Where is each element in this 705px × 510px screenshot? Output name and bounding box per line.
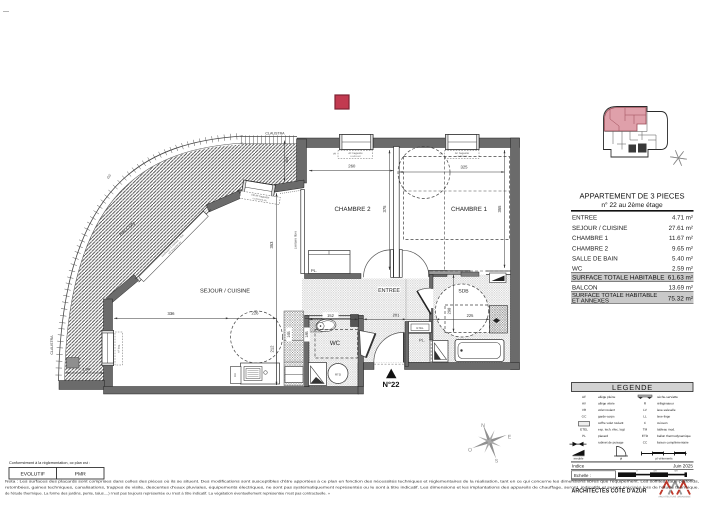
svg-text:ARCHITECTURE URBANISME: ARCHITECTURE URBANISME (658, 496, 691, 499)
svg-text:SURFACE TOTALE HABITABLE: SURFACE TOTALE HABITABLE (572, 275, 665, 282)
svg-text:2.59 m²: 2.59 m² (672, 265, 693, 272)
svg-text:4.71 m²: 4.71 m² (672, 215, 693, 222)
svg-text:LEGENDE: LEGENDE (612, 383, 653, 392)
svg-text:volet roulant: volet roulant (598, 408, 615, 412)
svg-text:CHAMBRE 2: CHAMBRE 2 (572, 245, 609, 252)
svg-text:61.63 m²: 61.63 m² (668, 275, 693, 282)
svg-text:coffre volet roulant: coffre volet roulant (598, 421, 624, 425)
svg-text:27.61 m²: 27.61 m² (669, 225, 693, 232)
svg-text:11.67 m²: 11.67 m² (669, 235, 693, 242)
svg-text:13.69 m²: 13.69 m² (669, 284, 693, 291)
svg-text:201: 201 (393, 313, 400, 318)
svg-text:lave-vaisselle: lave-vaisselle (657, 408, 676, 412)
svg-text:de l'étude thermique. La forme: de l'étude thermique. La forme des jardi… (5, 492, 330, 496)
svg-text:375: 375 (382, 205, 387, 213)
svg-text:PL: PL (582, 434, 586, 438)
svg-text:tableau mod.: tableau mod. (657, 427, 675, 431)
svg-text:SALLE DE BAIN: SALLE DE BAIN (572, 256, 618, 263)
svg-text:ETEL: ETEL (417, 326, 424, 330)
svg-text:PL.: PL. (419, 339, 425, 343)
svg-text:E: E (508, 435, 512, 441)
svg-text:N°22: N°22 (383, 380, 400, 389)
svg-text:SEJOUR / CUISINE: SEJOUR / CUISINE (572, 225, 627, 232)
svg-text:Indice: Indice (572, 463, 585, 468)
svg-text:LL: LL (643, 415, 647, 419)
svg-text:garde-corps: garde-corps (598, 415, 615, 419)
svg-text:ETD: ETD (642, 434, 649, 438)
svg-text:SDB: SDB (458, 289, 469, 295)
svg-text:298: 298 (447, 307, 452, 314)
svg-text:Juin 2025: Juin 2025 (673, 463, 693, 468)
svg-text:S: S (495, 459, 499, 465)
svg-text:ETEL: ETEL (580, 427, 588, 431)
svg-text:9.65 m²: 9.65 m² (672, 245, 693, 252)
svg-text:AF bag.: AF bag. (118, 344, 121, 353)
svg-text:152: 152 (327, 313, 334, 318)
svg-text:robinet de puisage: robinet de puisage (598, 440, 624, 444)
svg-text:75.32 m²: 75.32 m² (668, 296, 693, 303)
svg-text:allège pleine: allège pleine (598, 395, 616, 399)
svg-text:185: 185 (305, 331, 309, 337)
svg-text:PL.: PL. (311, 268, 317, 273)
svg-text:cuisson: cuisson (657, 421, 668, 425)
svg-text:165: 165 (287, 331, 291, 337)
svg-text:404: 404 (285, 157, 289, 163)
svg-text:336: 336 (168, 311, 176, 316)
svg-text:ENTREE: ENTREE (378, 288, 400, 294)
svg-text:pl vêtements: pl vêtements (655, 456, 673, 460)
svg-text:FRI: FRI (234, 373, 237, 377)
svg-text:allège vitrée: allège vitrée (598, 402, 615, 406)
svg-text:esp. tech. élec. logt: esp. tech. élec. logt (598, 427, 625, 431)
svg-text:325: 325 (461, 165, 469, 170)
svg-text:sèche-serviette: sèche-serviette (657, 395, 678, 399)
svg-text:5m: 5m (674, 470, 677, 473)
svg-text:EVOLUTIF: EVOLUTIF (20, 471, 44, 477)
svg-text:Echelle :: Echelle : (574, 473, 591, 478)
svg-text:AF: AF (582, 395, 586, 399)
svg-text:pl: pl (620, 456, 623, 460)
svg-text:O: O (468, 448, 472, 454)
svg-text:Linéaire libre: Linéaire libre (294, 231, 298, 249)
svg-text:ENTREE: ENTREE (572, 215, 597, 222)
svg-text:212: 212 (270, 345, 275, 353)
svg-text:VR: VR (582, 408, 587, 412)
svg-text:réfrigérateur: réfrigérateur (657, 402, 674, 406)
svg-text:225: 225 (467, 313, 474, 318)
svg-text:APPARTEMENT DE 3 PIECES: APPARTEMENT DE 3 PIECES (579, 192, 684, 201)
svg-text:placard: placard (598, 434, 608, 438)
svg-text:CLAUSTRA: CLAUSTRA (50, 335, 54, 355)
svg-text:1.04: 1.04 (82, 368, 89, 372)
svg-text:lave-linge: lave-linge (657, 415, 671, 419)
svg-text:226: 226 (252, 311, 260, 316)
svg-text:meuble: meuble (574, 456, 584, 460)
svg-text:PMR: PMR (75, 471, 87, 477)
svg-text:BALCON: BALCON (572, 284, 597, 291)
svg-text:260: 260 (348, 164, 356, 169)
svg-text:TM: TM (643, 427, 648, 431)
svg-text:coulissant: coulissant (350, 155, 361, 158)
svg-text:Conformément à la réglementati: Conformément à la réglementation, ce pla… (9, 461, 90, 465)
svg-text:Nota : Les surfaces des placar: Nota : Les surfaces des placards sont co… (5, 480, 699, 484)
svg-text:1m: 1m (653, 470, 656, 473)
svg-text:GC: GC (582, 415, 587, 419)
svg-text:CLAUSTRA: CLAUSTRA (265, 131, 285, 135)
svg-text:353: 353 (269, 241, 274, 249)
svg-text:N: N (481, 423, 485, 429)
svg-text:CHAMBRE 1: CHAMBRE 1 (572, 235, 609, 242)
svg-text:retombées, gaines techniques,: retombées, gaines techniques, canalisati… (5, 486, 699, 490)
svg-text:ballon thermodynamique: ballon thermodynamique (657, 434, 691, 438)
svg-text:n° 22 au 2ème étage: n° 22 au 2ème étage (601, 202, 663, 209)
svg-text:liaison complémentaire: liaison complémentaire (657, 440, 689, 444)
svg-text:SEJOUR / CUISINE: SEJOUR / CUISINE (200, 288, 250, 295)
svg-text:RTD: RTD (335, 372, 342, 376)
svg-text:5.40 m²: 5.40 m² (672, 256, 693, 263)
svg-text:WC: WC (330, 340, 341, 347)
svg-text:VR: VR (333, 153, 337, 156)
svg-text:CC: CC (643, 440, 648, 444)
svg-text:CHAMBRE 1: CHAMBRE 1 (451, 206, 488, 213)
svg-text:ET ANNEXES: ET ANNEXES (572, 298, 609, 305)
svg-text:355: 355 (497, 205, 502, 213)
svg-text:CHAMBRE 2: CHAMBRE 2 (334, 206, 371, 213)
svg-text:WC: WC (572, 265, 583, 272)
